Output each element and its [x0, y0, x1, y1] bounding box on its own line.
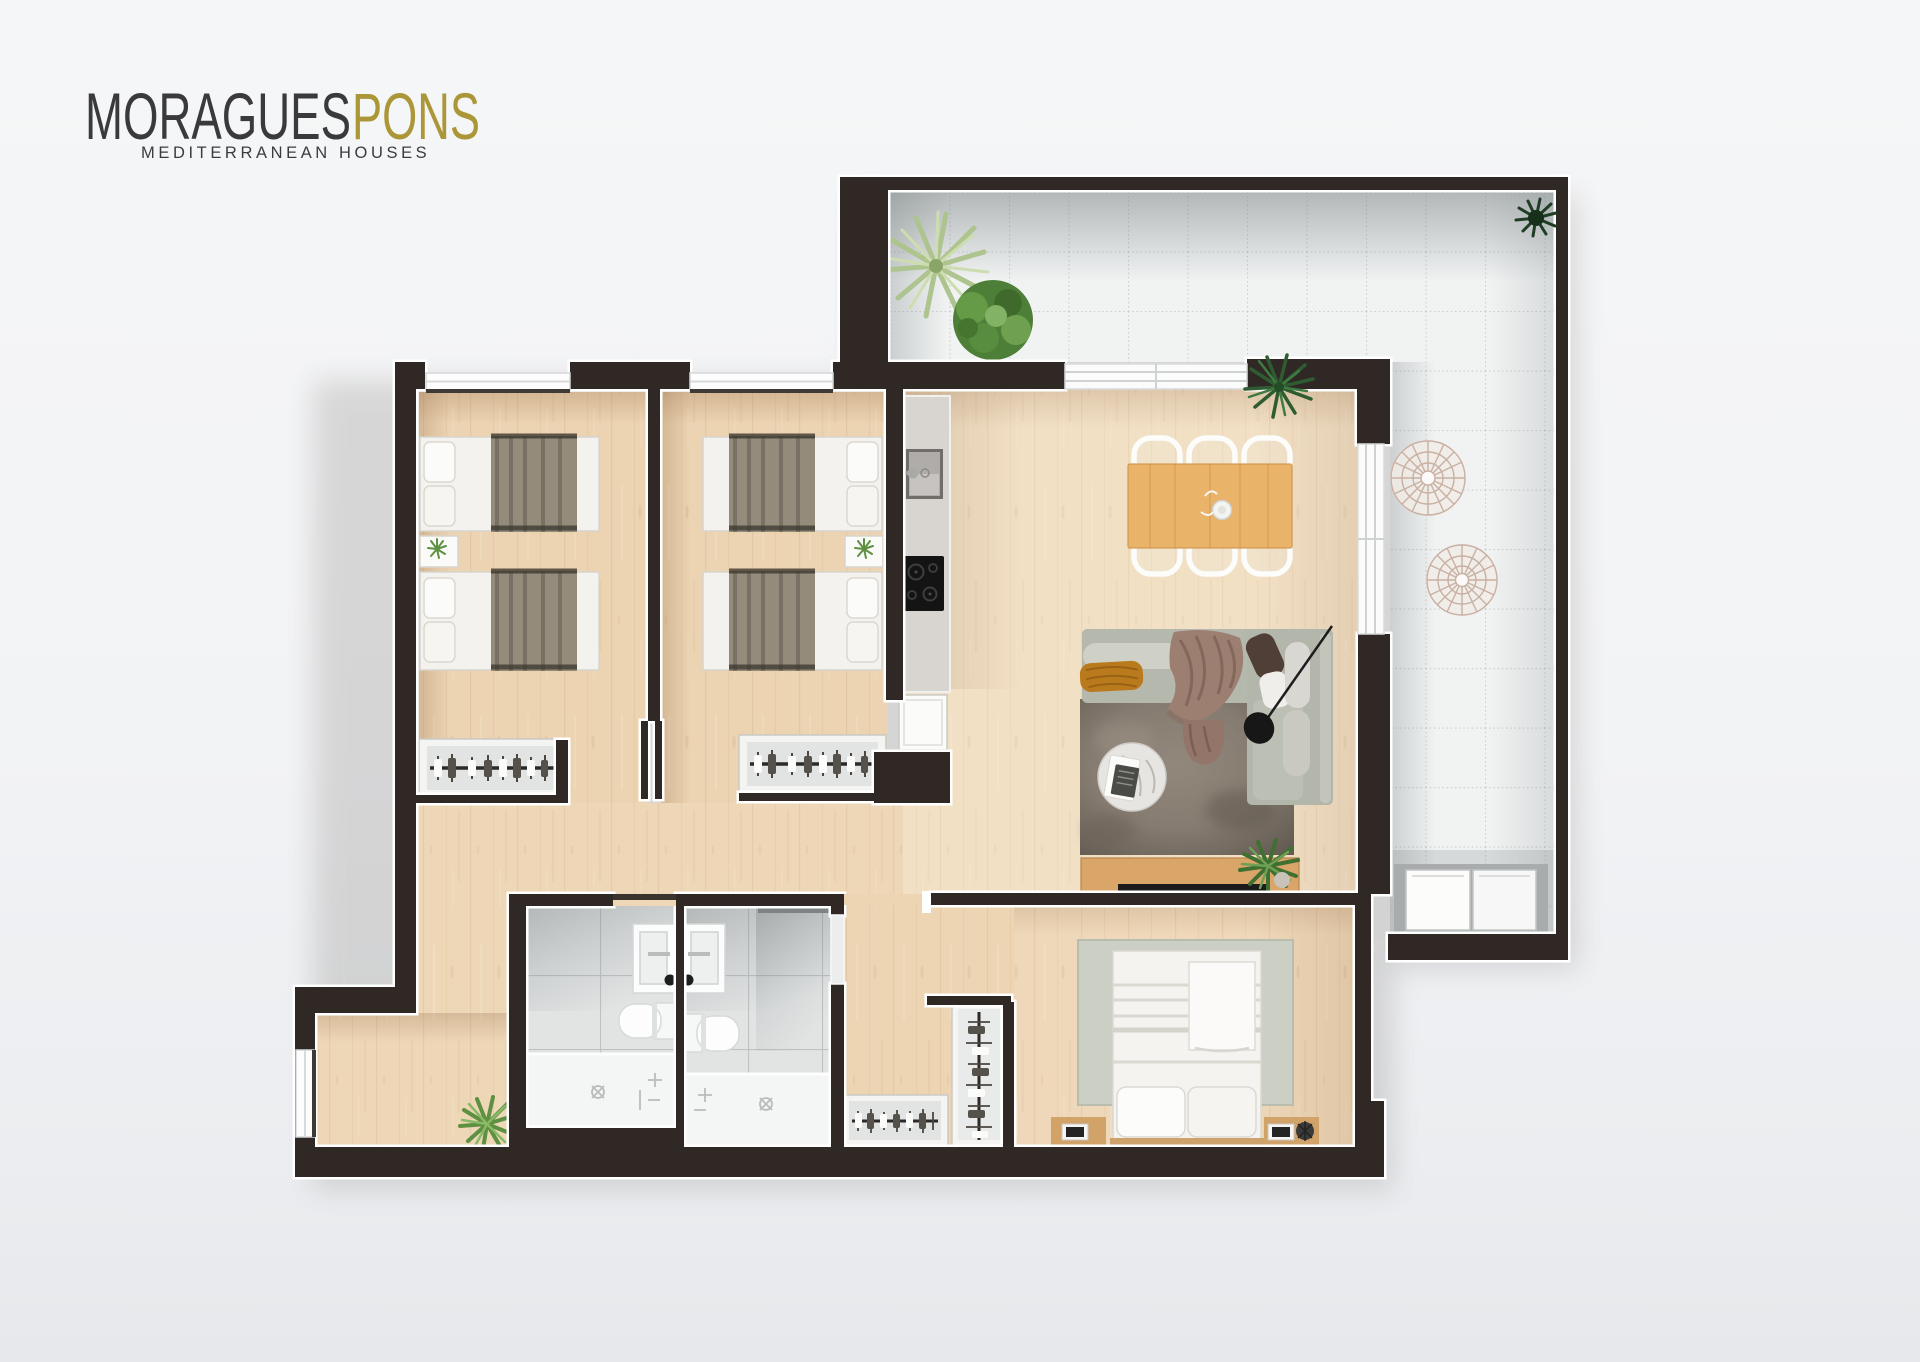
svg-text:MORAGUES: MORAGUES	[85, 79, 351, 153]
svg-text:MEDITERRANEAN HOUSES: MEDITERRANEAN HOUSES	[141, 144, 430, 162]
svg-text:PONS: PONS	[352, 79, 480, 153]
